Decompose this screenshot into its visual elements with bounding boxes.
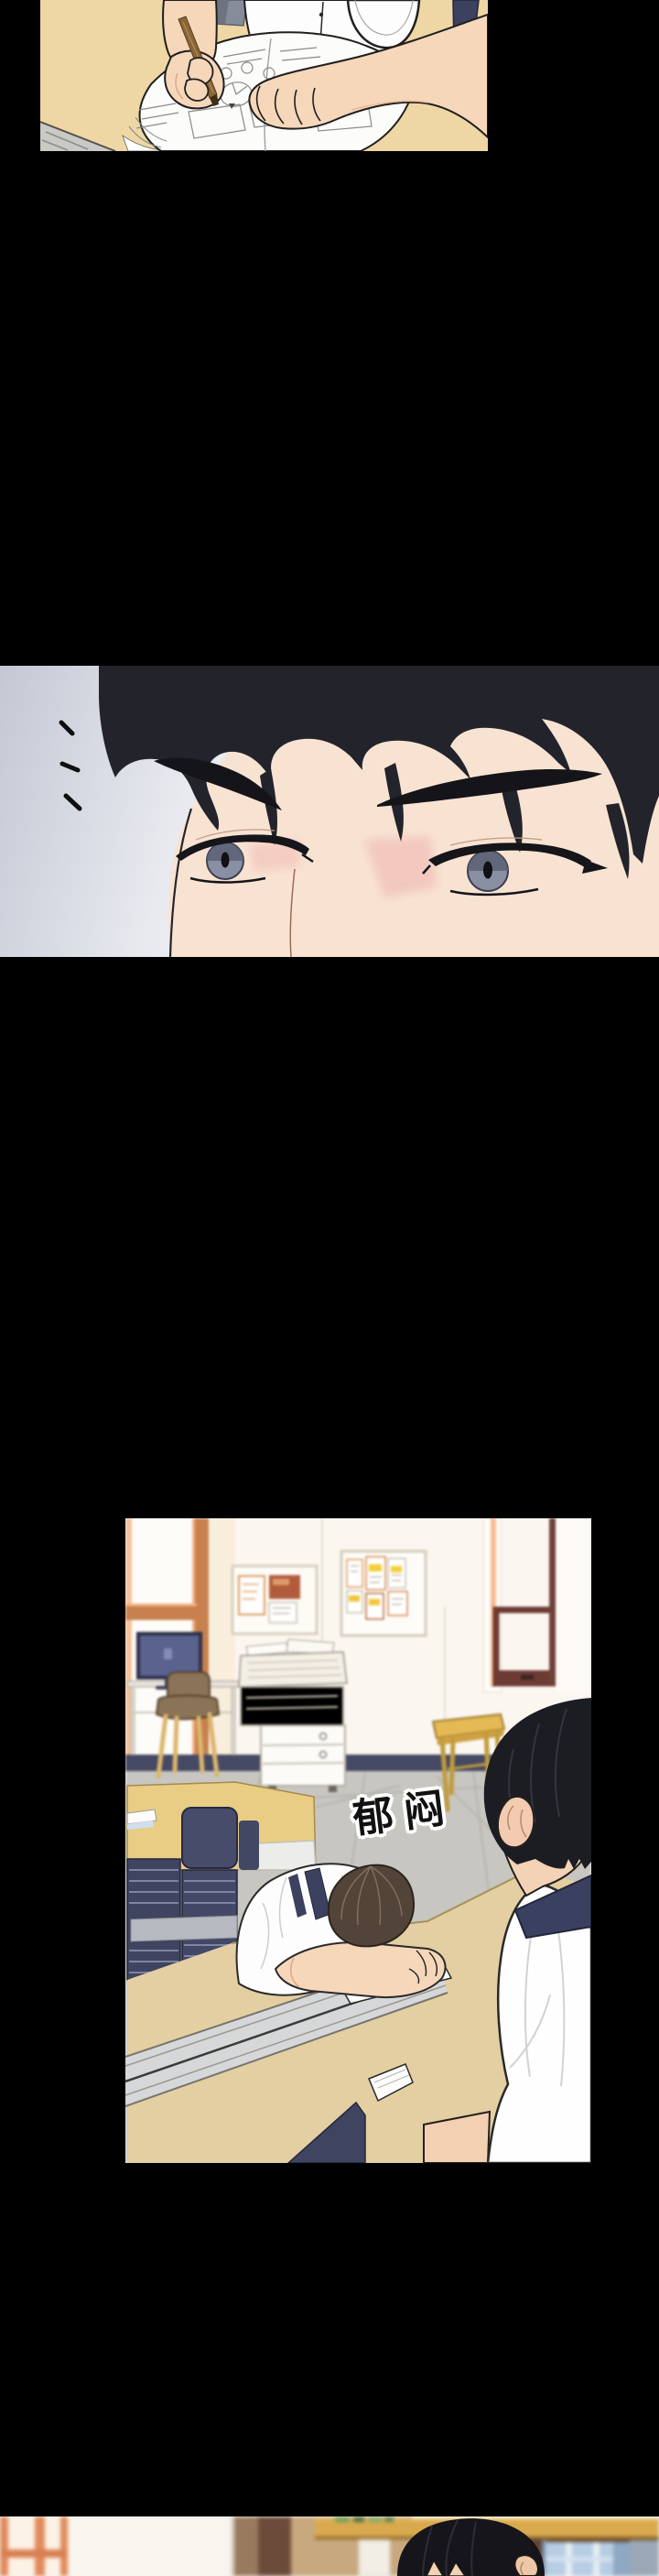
orange-window-lattice — [0, 2516, 70, 2576]
notice-marks — [61, 723, 80, 809]
desk-writing-scene — [40, 0, 488, 151]
eyes-scene — [0, 666, 659, 957]
blurred-background — [0, 2516, 659, 2576]
blue-window — [542, 2540, 659, 2576]
bulletin-board-1 — [232, 1566, 317, 1634]
panel-eyes-closeup — [0, 666, 659, 957]
right-pupil — [483, 862, 492, 879]
panel-desk-writing — [40, 0, 488, 151]
fg-ear — [498, 1797, 534, 1847]
door-edge — [234, 2516, 258, 2576]
panel-classroom: 郁闷 — [125, 1518, 591, 2163]
left-pupil — [221, 853, 230, 868]
webtoon-page: 郁闷 — [0, 0, 659, 2576]
bulletin-board-2 — [341, 1551, 426, 1636]
green-books — [335, 2516, 394, 2522]
navy-chairback — [182, 1808, 237, 1868]
panel-classroom-door — [0, 2516, 659, 2576]
navy-chairback-2 — [239, 1821, 259, 1870]
chair-edge — [215, 0, 247, 26]
classroom-door-scene — [0, 2516, 659, 2576]
sfx-text: 郁闷 — [350, 1774, 459, 1844]
writing-hand — [163, 0, 223, 108]
